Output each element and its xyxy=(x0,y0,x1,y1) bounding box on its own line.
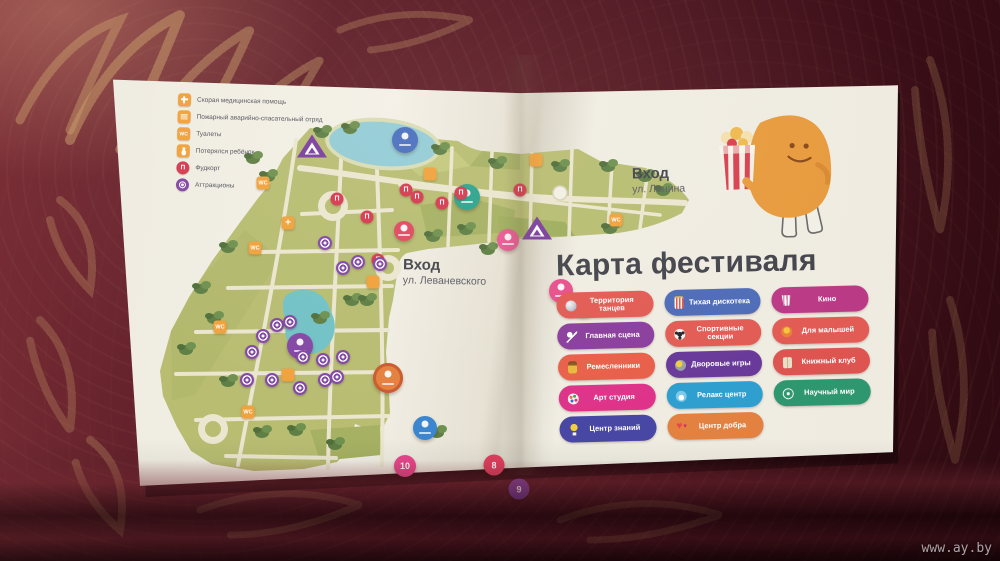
legend-item: Пожарный аварийно-спасательный отряд xyxy=(177,110,327,127)
category-label: Тихая дискотека xyxy=(686,297,761,307)
category-button: Ремесленники xyxy=(558,352,655,380)
watermark: www.ay.by xyxy=(922,541,992,556)
palette-icon xyxy=(566,391,581,406)
legend-label: Фудкорт xyxy=(195,164,220,172)
category-label: Дворовые игры xyxy=(688,359,763,369)
category-label: Книжный клуб xyxy=(795,356,870,366)
category-label: Арт студия xyxy=(581,392,656,402)
legend-item: Фудкорт xyxy=(176,161,326,178)
legend-item: Скорая медицинская помощь xyxy=(178,93,328,110)
category-button: Центр знаний xyxy=(559,414,656,442)
category-button: Арт студия xyxy=(558,383,655,411)
silent-disco-icon xyxy=(671,295,686,310)
honey-jar-icon xyxy=(565,360,580,375)
entrance-name: Вход xyxy=(632,166,685,183)
category-button: Дворовые игры xyxy=(665,350,762,378)
medical-cross-icon xyxy=(178,93,191,106)
entrance-label-lenina: Вход ул. Ленина xyxy=(632,166,686,195)
category-label: Центр знаний xyxy=(581,423,656,433)
entrance-street: ул. Ленина xyxy=(632,182,685,195)
lost-child-icon xyxy=(177,144,190,157)
legend-label: Потерялся ребёнок xyxy=(196,147,255,156)
duck-toy-icon xyxy=(779,324,794,339)
category-label: Релакс центр xyxy=(688,390,763,400)
page-title: Карта фестиваля xyxy=(556,243,887,284)
category-label: Спортивные секции xyxy=(687,324,762,342)
entrance-label-levanevskogo: Вход ул. Леваневского xyxy=(403,257,487,287)
microphone-icon xyxy=(564,329,579,344)
category-button: Кино xyxy=(771,285,868,313)
popcorn-icon xyxy=(779,293,794,308)
hearts-icon xyxy=(674,419,689,434)
legend-item: Туалеты xyxy=(177,127,327,144)
festival-park-map xyxy=(0,0,1000,561)
category-label: Ремесленники xyxy=(580,361,655,371)
category-grid: Территория танцевТихая дискотекаКиноГлав… xyxy=(556,285,872,443)
legend-label: Аттракционы xyxy=(195,181,235,190)
category-label: Кино xyxy=(794,294,869,304)
yard-games-icon xyxy=(672,357,687,372)
map-legend: Скорая медицинская помощьПожарный аварий… xyxy=(176,93,328,195)
legend-label: Туалеты xyxy=(196,130,221,138)
category-button: Тихая дискотека xyxy=(664,288,761,316)
category-button: Спортивные секции xyxy=(665,319,762,347)
category-label: Территория танцев xyxy=(578,295,653,313)
category-button: Научный мир xyxy=(774,378,871,406)
legend-item: Потерялся ребёнок xyxy=(177,144,327,161)
bulb-icon xyxy=(566,422,581,437)
category-button: Территория танцев xyxy=(556,290,653,318)
wc-icon xyxy=(177,127,190,140)
relax-icon xyxy=(673,388,688,403)
entrance-name: Вход xyxy=(403,257,487,275)
legend-label: Скорая медицинская помощь xyxy=(197,96,286,106)
category-label: Центр добра xyxy=(689,421,764,431)
category-label: Главная сцена xyxy=(579,330,654,340)
category-button: Центр добра xyxy=(667,412,764,440)
foodcourt-icon xyxy=(176,161,189,174)
fire-rescue-icon xyxy=(177,110,190,123)
category-label: Для малышей xyxy=(794,325,869,335)
category-button: Книжный клуб xyxy=(773,347,870,375)
category-button: Для малышей xyxy=(772,316,869,344)
legend-label: Пожарный аварийно-спасательный отряд xyxy=(197,113,323,124)
category-button: Релакс центр xyxy=(666,381,763,409)
soccer-ball-icon xyxy=(672,326,687,341)
category-button: Главная сцена xyxy=(557,321,654,349)
popcorn-mascot-illustration xyxy=(697,89,862,254)
book-icon xyxy=(780,355,795,370)
attractions-icon xyxy=(176,178,189,191)
legend-list: Скорая медицинская помощьПожарный аварий… xyxy=(176,93,328,195)
photo-of-festival-map-booklet: 1089ПWCWCWCWCWC+ПППППППП Скорая медицинс… xyxy=(0,0,1000,561)
category-label: Научный мир xyxy=(796,387,871,397)
atom-icon xyxy=(781,386,796,401)
disco-ball-icon xyxy=(563,298,578,313)
entrance-street: ул. Леваневского xyxy=(403,274,487,287)
